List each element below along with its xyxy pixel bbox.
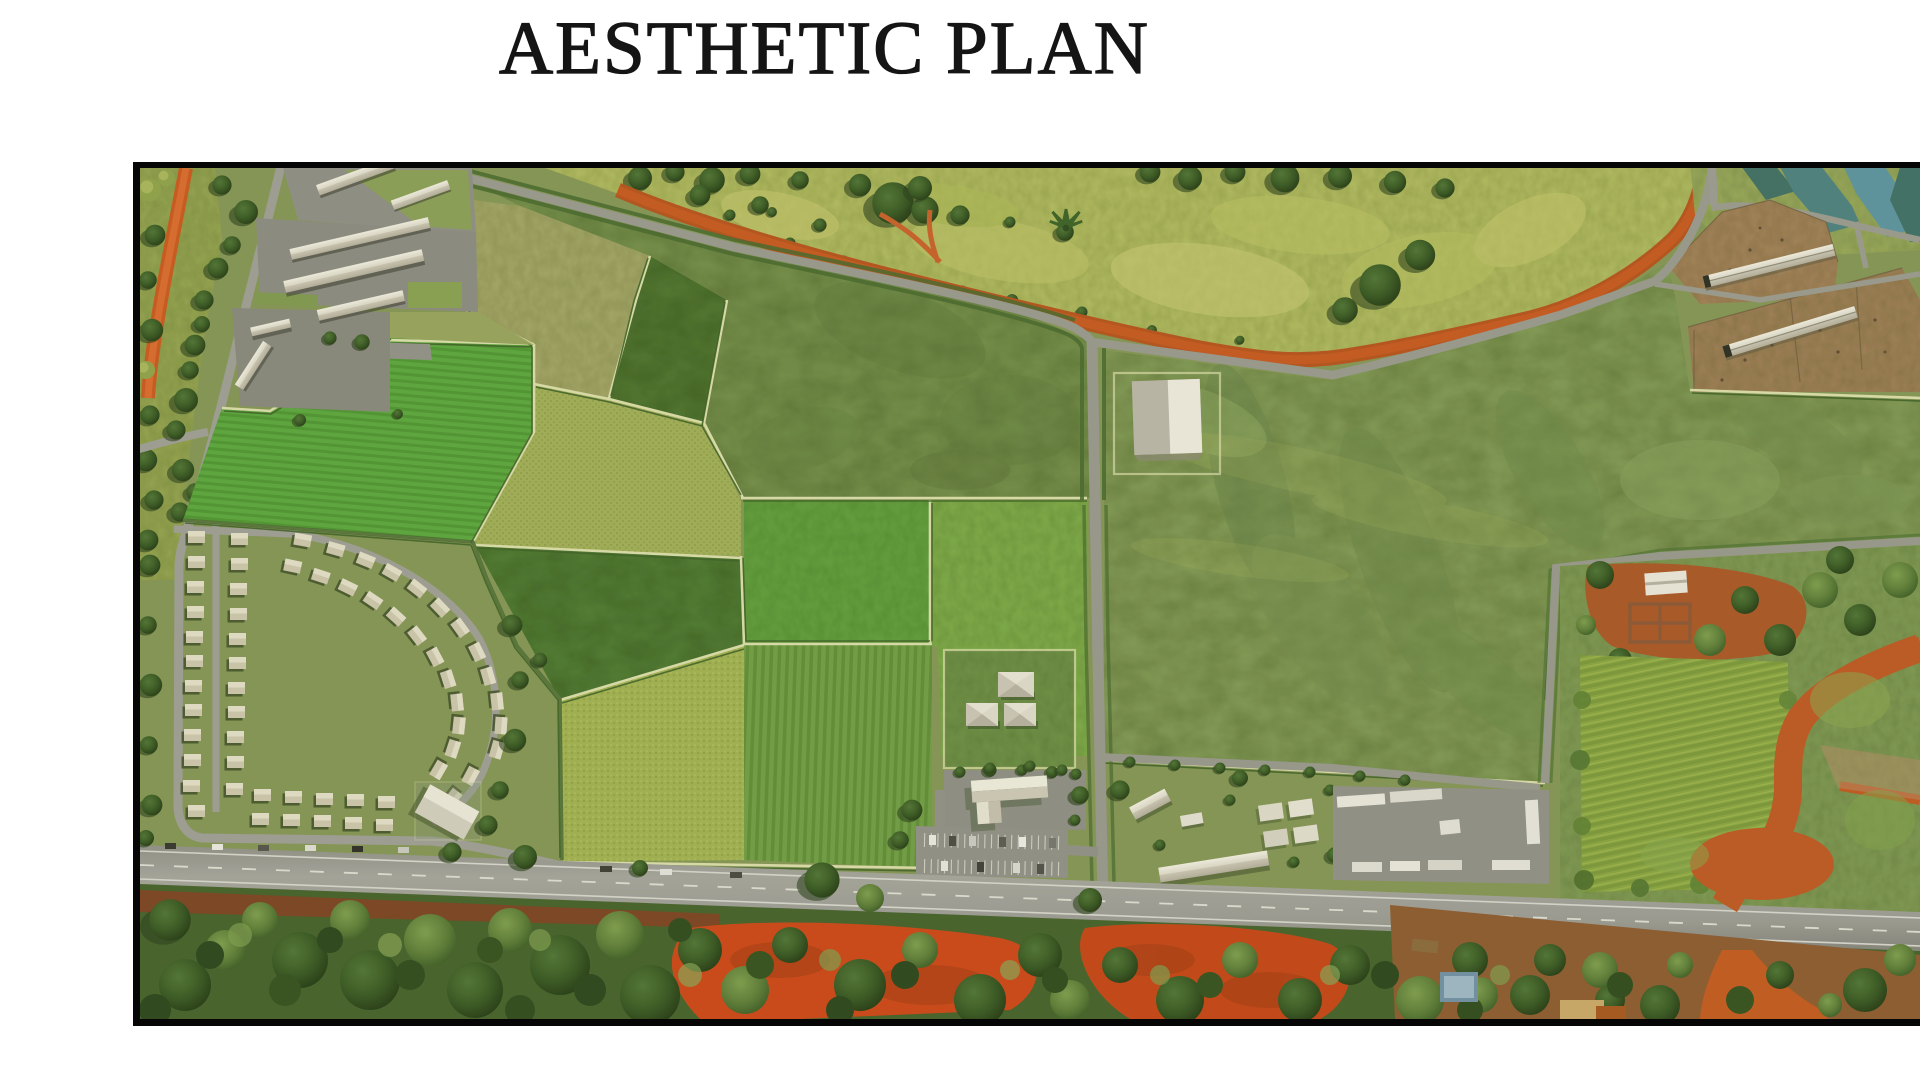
svg-text:AESTHETIC PLAN: AESTHETIC PLAN	[499, 7, 1150, 90]
